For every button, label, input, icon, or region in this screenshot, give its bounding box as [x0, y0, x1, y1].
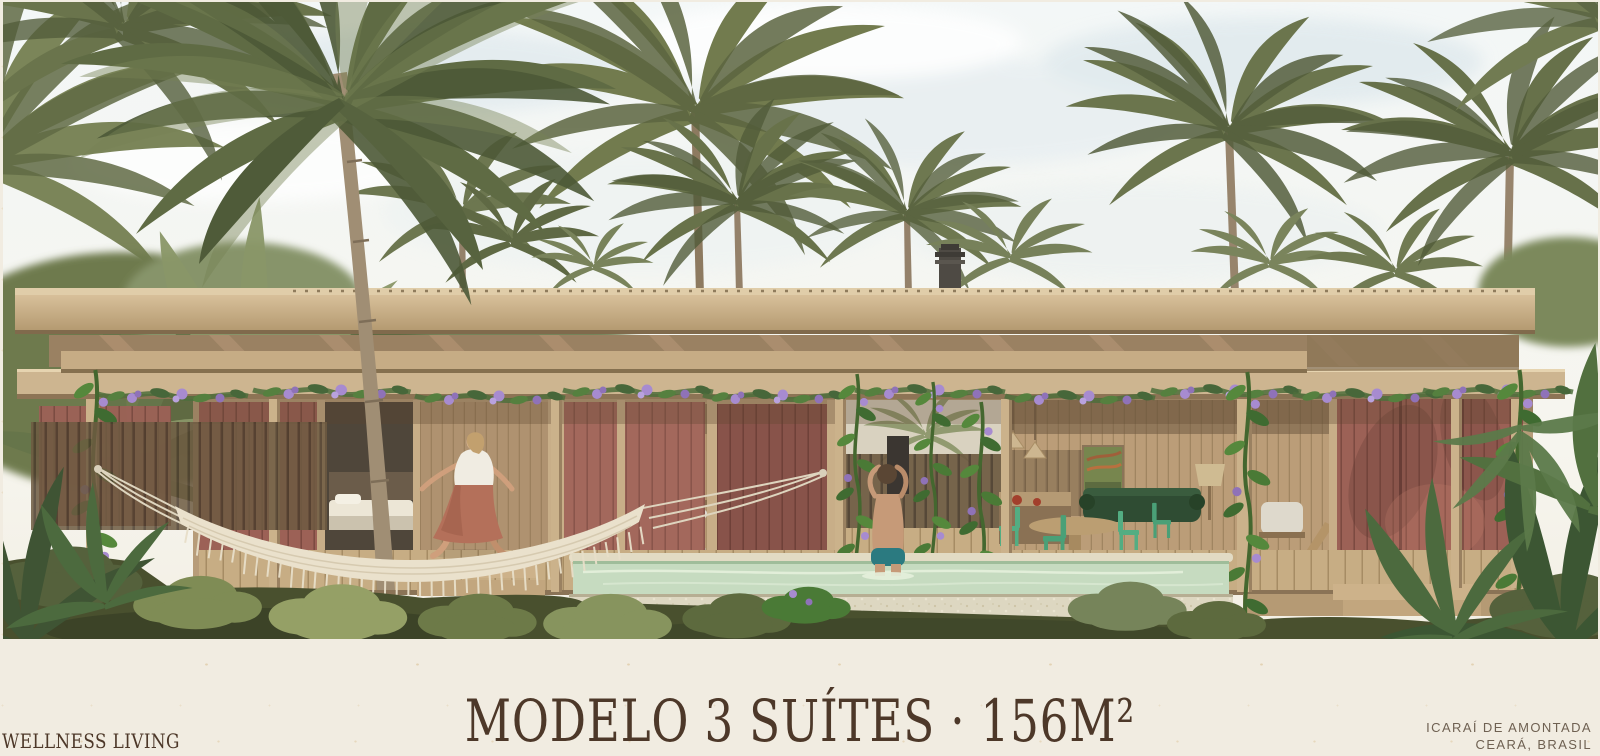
- slide-title: MODELO 3 SUÍTES · 156M²: [465, 692, 1135, 750]
- location-line-2: CEARÁ, BRASIL: [1426, 736, 1592, 753]
- presentation-slide: { "slide": { "title": "MODELO 3 SUÍTES ·…: [0, 0, 1600, 756]
- hero-render: [3, 2, 1598, 639]
- brand-wordmark: WELLNESS LIVING: [2, 729, 180, 753]
- roof: [15, 288, 1535, 373]
- location-text: ICARAÍ DE AMONTADA CEARÁ, BRASIL: [1426, 719, 1592, 753]
- location-line-1: ICARAÍ DE AMONTADA: [1426, 719, 1592, 736]
- hero-render-illustration: [3, 2, 1598, 639]
